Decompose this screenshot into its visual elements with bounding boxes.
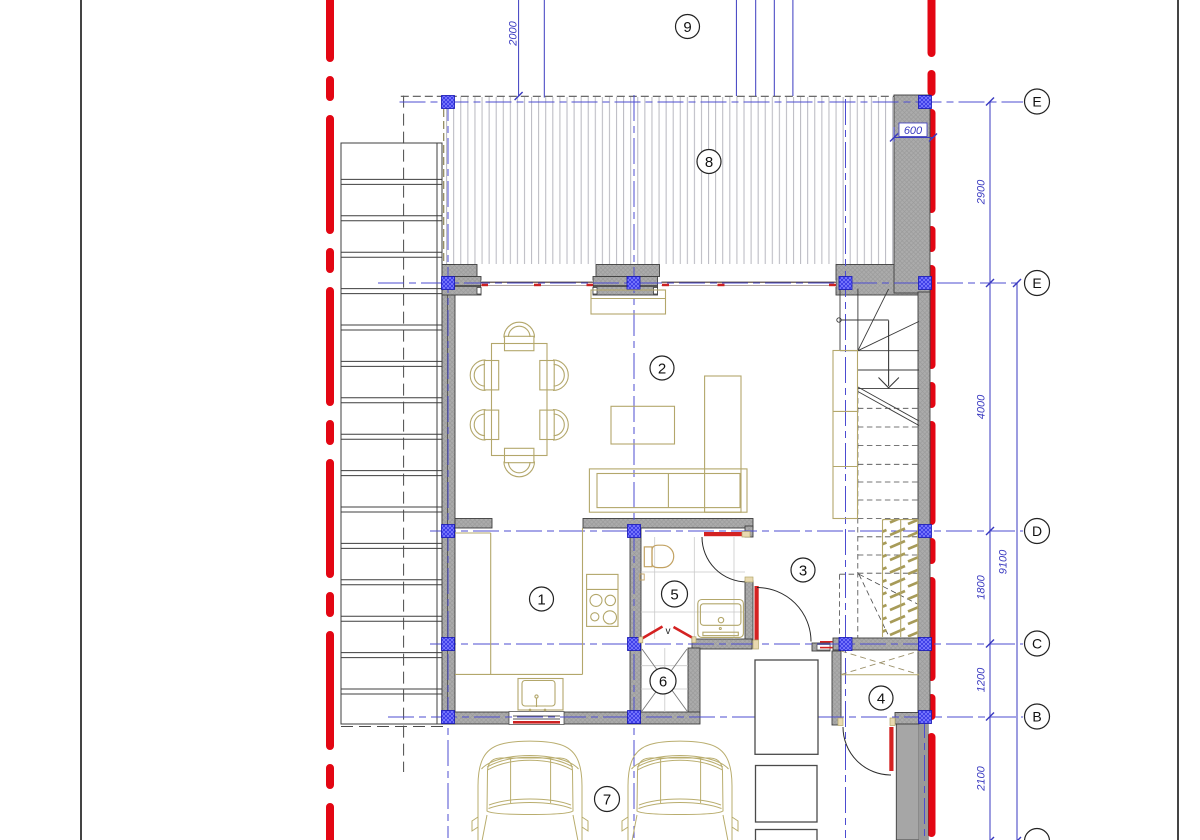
svg-text:3: 3 (799, 563, 807, 580)
svg-text:1200: 1200 (976, 667, 988, 692)
svg-text:B: B (1032, 709, 1041, 725)
svg-text:v: v (666, 626, 671, 637)
svg-text:600: 600 (904, 125, 923, 137)
svg-text:6: 6 (659, 674, 667, 691)
svg-text:9: 9 (683, 19, 691, 36)
svg-text:E: E (1032, 94, 1041, 110)
svg-text:9100: 9100 (998, 549, 1010, 574)
svg-text:C: C (1032, 636, 1042, 652)
svg-text:2000: 2000 (508, 20, 520, 46)
svg-text:7: 7 (603, 792, 611, 809)
svg-text:1800: 1800 (976, 574, 988, 599)
svg-text:D: D (1032, 523, 1042, 539)
svg-text:8: 8 (705, 154, 713, 171)
svg-text:4000: 4000 (976, 394, 988, 419)
svg-text:2100: 2100 (976, 765, 988, 791)
svg-text:2: 2 (658, 361, 666, 378)
svg-text:5: 5 (670, 587, 678, 604)
svg-text:4: 4 (877, 691, 885, 708)
svg-text:2900: 2900 (976, 179, 988, 205)
svg-text:E: E (1032, 275, 1041, 291)
svg-text:1: 1 (537, 592, 545, 609)
